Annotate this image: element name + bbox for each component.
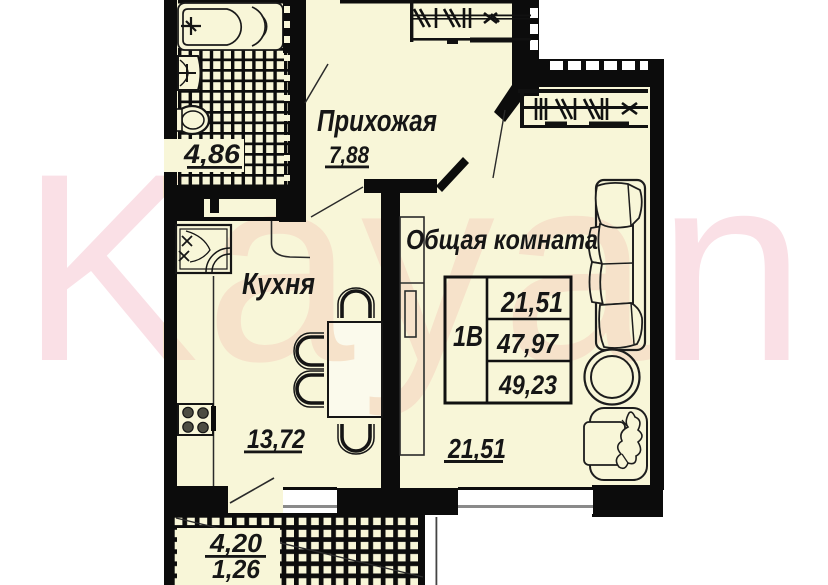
svg-text:13,72: 13,72 — [247, 424, 305, 454]
svg-text:21,51: 21,51 — [447, 433, 506, 464]
svg-text:1,26: 1,26 — [212, 554, 261, 584]
